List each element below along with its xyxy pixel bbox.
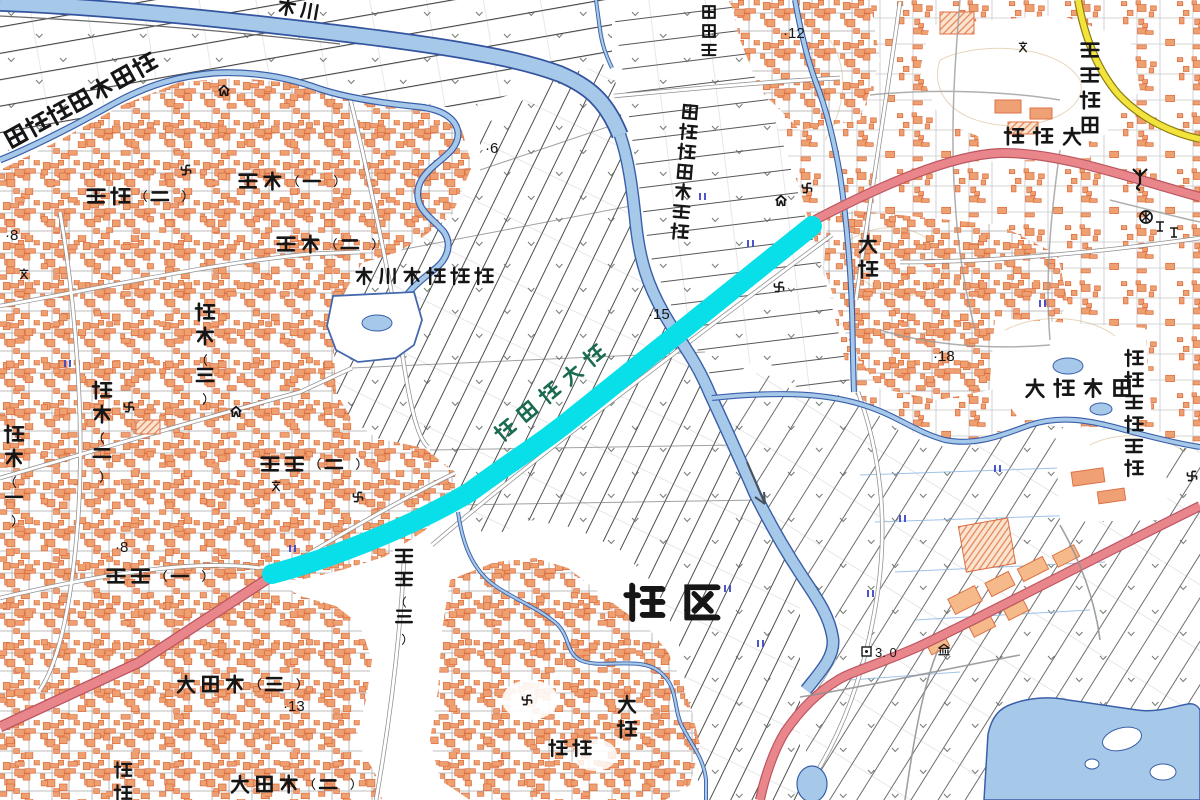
svg-text:·18: ·18 (933, 348, 955, 365)
svg-text:·12: ·12 (783, 25, 805, 42)
svg-text:3. 0: 3. 0 (875, 645, 897, 660)
svg-text:·8: ·8 (5, 227, 18, 244)
svg-text:·13: ·13 (283, 698, 305, 715)
svg-text:·8: ·8 (115, 539, 128, 556)
svg-text:·15: ·15 (648, 306, 670, 323)
svg-text:·6: ·6 (485, 140, 498, 157)
